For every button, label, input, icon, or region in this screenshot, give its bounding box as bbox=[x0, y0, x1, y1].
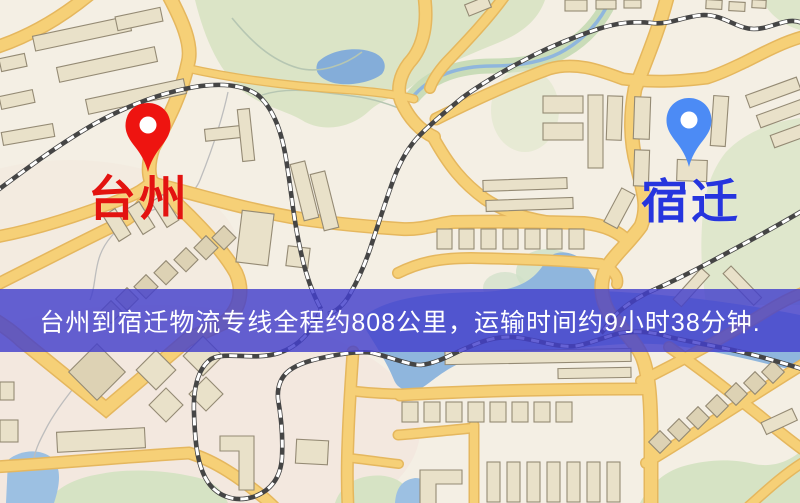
origin-pin-icon[interactable] bbox=[124, 102, 172, 174]
origin-label: 台州 bbox=[88, 176, 190, 224]
map-canvas[interactable]: 台州 宿迁 台州到宿迁物流专线全程约808公里，运输时间约9小时38分钟. bbox=[0, 0, 800, 503]
map-art bbox=[0, 0, 800, 503]
destination-pin-icon[interactable] bbox=[665, 97, 713, 169]
route-info-banner: 台州到宿迁物流专线全程约808公里，运输时间约9小时38分钟. bbox=[0, 289, 800, 352]
destination-label: 宿迁 bbox=[641, 178, 741, 225]
route-info-text: 台州到宿迁物流专线全程约808公里，运输时间约9小时38分钟. bbox=[39, 303, 760, 339]
